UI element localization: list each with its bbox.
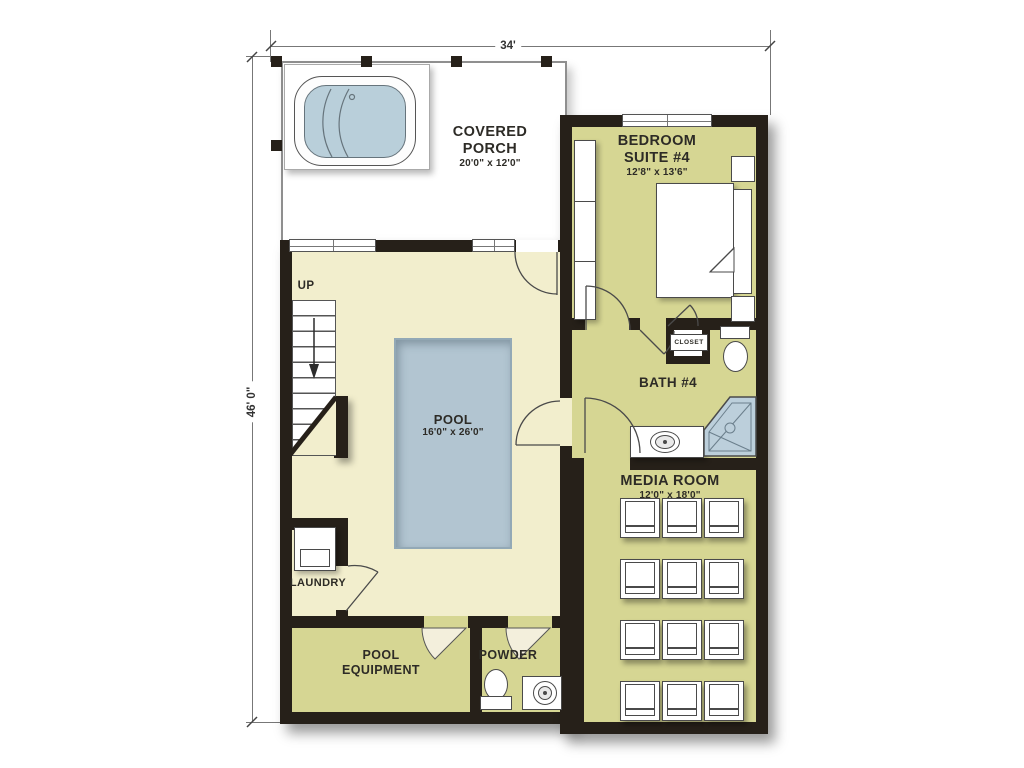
theater-seat [662,559,702,599]
theater-seat [620,681,660,721]
washer-door [300,549,330,567]
bath-label: BATH #4 [639,375,697,391]
theater-seat [704,559,744,599]
bath-door-opening [640,318,666,330]
pool-equipment-label: POOL EQUIPMENT [342,648,420,678]
theater-seat [662,620,702,660]
staircase [292,300,336,456]
pool [394,338,512,549]
seat-row [620,498,744,538]
bedroom-name-1: BEDROOM [618,133,697,150]
toilet-bowl [723,341,748,372]
bed [656,183,734,298]
theater-seat [662,498,702,538]
bedroom-label: BEDROOM SUITE #4 12'8" x 13'6" [618,133,697,179]
porch-edge-right [565,61,567,117]
hot-tub-water [304,85,406,158]
powder-door-opening [508,616,552,628]
theater-seat [620,498,660,538]
pool-hall-door-opening [560,398,572,446]
porch-post [271,56,282,67]
covered-porch-size: 20'0" x 12'0" [453,158,528,170]
seat-row [620,620,744,660]
toilet-tank [720,326,750,339]
dimension-label-height: 46' 0" [246,382,258,423]
powder-toilet-tank [480,696,512,710]
pool-equipment-door-opening [424,616,468,628]
bedroom-window [622,114,712,127]
dimension-extension-left-bottom [246,722,282,723]
pool-name: POOL [422,412,483,427]
bedroom-wardrobe [574,140,596,320]
bath-sink-drain [663,440,667,444]
media-room-label: MEDIA ROOM 12'0" x 18'0" [620,473,719,502]
porch-post [541,56,552,67]
porch-post [271,140,282,151]
dimension-label-width: 34' [495,40,521,52]
media-door-opening [584,458,630,470]
porch-post [451,56,462,67]
theater-seat [620,620,660,660]
pool-equipment-name-2: EQUIPMENT [342,663,420,678]
porch-door-opening [516,240,558,252]
pool-size: 16'0" x 26'0" [422,427,483,439]
pool-label: POOL 16'0" x 26'0" [422,412,483,439]
closet-label: CLOSET [670,334,708,351]
theater-seat [704,681,744,721]
seat-row [620,681,744,721]
powder-sink-drain [543,691,547,695]
bedroom-size: 12'8" x 13'6" [618,167,697,179]
pool-room-window-right [472,239,515,252]
theater-seat [704,620,744,660]
laundry-wall-right-upper [336,518,348,566]
porch-edge-top [281,61,567,63]
covered-porch-name-2: PORCH [453,141,528,158]
bedroom-name-2: SUITE #4 [618,150,697,167]
powder-label: POWDER [479,648,538,663]
seat-row [620,559,744,599]
porch-post [361,56,372,67]
stair-wall-stub [334,396,348,458]
dimension-extension-top-right [770,30,771,115]
nightstand [731,156,755,182]
laundry-wall-right-lower [336,610,348,616]
pool-equipment-name-1: POOL [342,648,420,663]
wardrobe-divider [575,261,595,262]
closet-wall-bottom [666,356,710,364]
floor-plan: 34' 46' 0" [0,0,1024,768]
wardrobe-divider [575,201,595,202]
covered-porch-label: COVERED PORCH 20'0" x 12'0" [453,124,528,170]
media-room-size: 12'0" x 18'0" [620,490,719,502]
media-room-name: MEDIA ROOM [620,473,719,490]
pool-room-window-left [289,239,376,252]
theater-seat [704,498,744,538]
laundry-label: LAUNDRY [290,577,346,590]
nightstand [731,296,755,322]
bed-headboard [733,189,752,294]
washer [294,527,336,571]
theater-seat [662,681,702,721]
stairs-up-label: UP [298,280,315,294]
covered-porch-name-1: COVERED [453,124,528,141]
theater-seat [620,559,660,599]
